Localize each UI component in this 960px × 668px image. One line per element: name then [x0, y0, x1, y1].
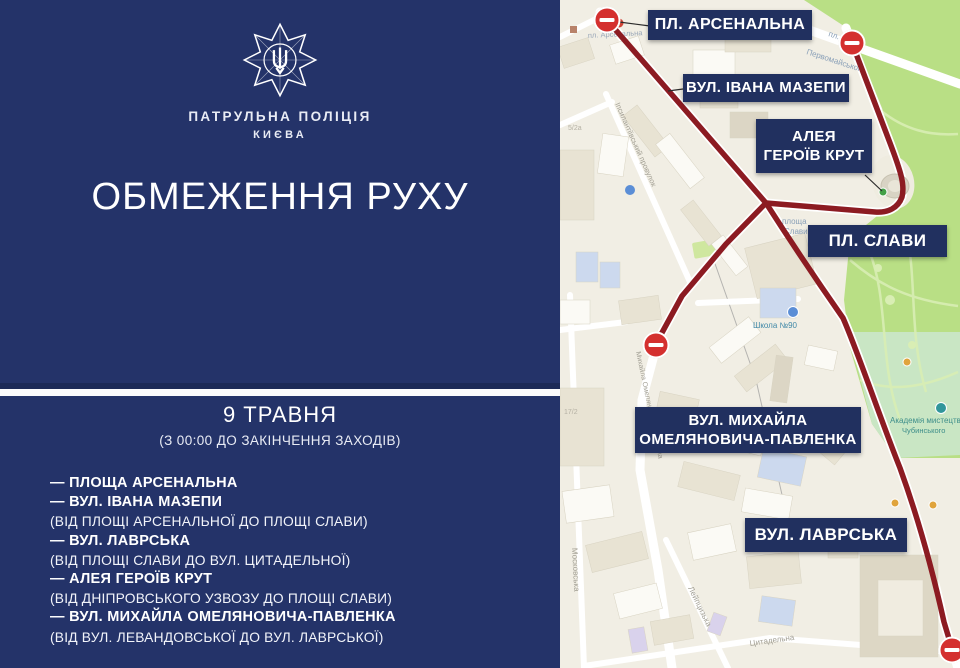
restriction-detail: (ВІД ПЛОЩІ СЛАВИ ДО ВУЛ. ЦИТАДЕЛЬНОЇ)	[50, 551, 530, 570]
page-title: ОБМЕЖЕННЯ РУХУ	[0, 176, 560, 219]
event-time-note: (З 00:00 ДО ЗАКІНЧЕННЯ ЗАХОДІВ)	[0, 433, 560, 448]
no-entry-icon	[839, 30, 866, 57]
callout-text: ГЕРОЇВ КРУТ	[764, 146, 865, 166]
restriction-street: — ВУЛ. МИХАЙЛА ОМЕЛЯНОВИЧА-ПАВЛЕНКА	[50, 608, 530, 627]
restriction-street: — АЛЕЯ ГЕРОЇВ КРУТ	[50, 570, 530, 589]
poi-icon	[903, 358, 911, 366]
callout-text: ВУЛ. МИХАЙЛА	[689, 411, 808, 431]
academy-icon	[936, 403, 947, 414]
info-panel: ПАТРУЛЬНА ПОЛІЦІЯ КИЄВА ОБМЕЖЕННЯ РУХУ 9…	[0, 0, 560, 668]
callout-pl-arsenalna: ПЛ. АРСЕНАЛЬНА	[648, 10, 812, 40]
street-label: площа	[782, 217, 807, 226]
callout-vul-omelianovycha-pavlenka: ВУЛ. МИХАЙЛА ОМЕЛЯНОВИЧА-ПАВЛЕНКА	[635, 407, 861, 453]
restriction-street: — ВУЛ. ІВАНА МАЗЕПИ	[50, 493, 530, 512]
restriction-street: — ПЛОЩА АРСЕНАЛЬНА	[50, 474, 530, 493]
callout-text: ВУЛ. ІВАНА МАЗЕПИ	[686, 78, 846, 98]
brand-block: ПАТРУЛЬНА ПОЛІЦІЯ КИЄВА	[0, 22, 560, 141]
callout-pl-slavy: ПЛ. СЛАВИ	[808, 225, 947, 257]
house-number: 17/2	[564, 409, 578, 416]
poi-icon	[929, 501, 937, 509]
callout-aleya-heroyiv-krut: АЛЕЯ ГЕРОЇВ КРУТ	[756, 119, 872, 173]
restriction-detail: (ВІД ВУЛ. ЛЕВАНДОВСЬКОЇ ДО ВУЛ. ЛАВРСЬКО…	[50, 628, 530, 647]
academy-label: Академія мистецтв	[890, 416, 960, 425]
city-map: пл. Арсенальна пл. Первомайського Іпсила…	[560, 0, 960, 668]
school-icon	[788, 307, 799, 318]
poster: ПАТРУЛЬНА ПОЛІЦІЯ КИЄВА ОБМЕЖЕННЯ РУХУ 9…	[0, 0, 960, 668]
org-name: ПАТРУЛЬНА ПОЛІЦІЯ	[0, 109, 560, 124]
no-entry-icon	[643, 332, 670, 359]
callout-text: ОМЕЛЯНОВИЧА-ПАВЛЕНКА	[639, 430, 856, 450]
house-number: 5/2а	[568, 125, 582, 132]
event-date: 9 ТРАВНЯ	[0, 402, 560, 428]
restriction-street: — ВУЛ. ЛАВРСЬКА	[50, 532, 530, 551]
schedule-block: 9 ТРАВНЯ (З 00:00 ДО ЗАКІНЧЕННЯ ЗАХОДІВ)	[0, 402, 560, 448]
callout-text: ПЛ. СЛАВИ	[829, 230, 927, 252]
restriction-detail: (ВІД ПЛОЩІ АРСЕНАЛЬНОЇ ДО ПЛОЩІ СЛАВИ)	[50, 512, 530, 531]
restriction-detail: (ВІД ДНІПРОВСЬКОГО УЗВОЗУ ДО ПЛОЩІ СЛАВИ…	[50, 589, 530, 608]
poi-icon	[625, 185, 635, 195]
shop-icon	[570, 26, 577, 33]
callout-vul-lavrska: ВУЛ. ЛАВРСЬКА	[745, 518, 907, 552]
academy-label-2: Чубинського	[902, 426, 945, 435]
callout-text: АЛЕЯ	[792, 127, 836, 147]
callout-text: ПЛ. АРСЕНАЛЬНА	[655, 15, 805, 36]
no-entry-icon	[594, 7, 621, 34]
callout-text: ВУЛ. ЛАВРСЬКА	[755, 524, 898, 546]
police-badge-icon	[242, 22, 318, 98]
callout-vul-ivana-mazepy: ВУЛ. ІВАНА МАЗЕПИ	[683, 74, 849, 102]
restrictions-list: — ПЛОЩА АРСЕНАЛЬНА — ВУЛ. ІВАНА МАЗЕПИ (…	[50, 474, 530, 647]
poi-icon	[891, 499, 899, 507]
org-city: КИЄВА	[0, 129, 560, 141]
school-label: Школа №90	[753, 321, 798, 330]
divider-stripe	[0, 389, 560, 396]
